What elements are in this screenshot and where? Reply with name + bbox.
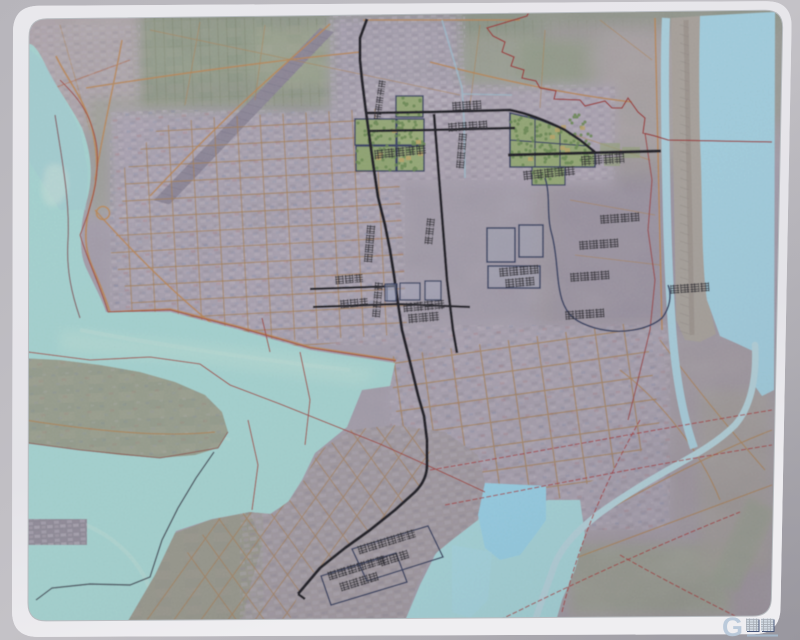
svg-text:G: G — [722, 612, 743, 640]
